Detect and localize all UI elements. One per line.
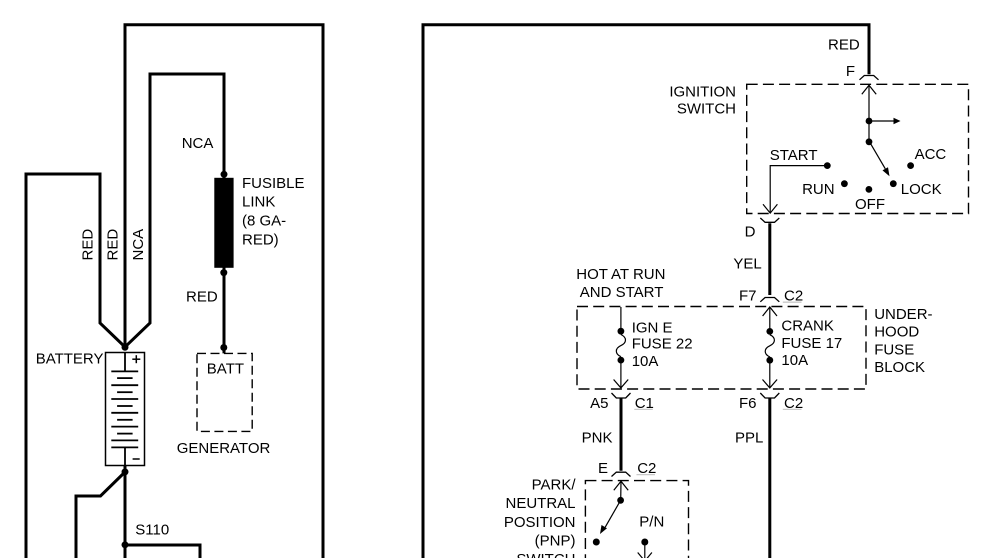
svg-text:FUSE 22: FUSE 22 [632, 335, 693, 352]
svg-text:CRANK: CRANK [781, 318, 834, 335]
svg-text:BATT: BATT [207, 360, 244, 377]
svg-text:PARK/: PARK/ [532, 476, 577, 493]
svg-text:GENERATOR: GENERATOR [177, 440, 271, 457]
svg-text:FUSE 17: FUSE 17 [781, 335, 842, 352]
svg-text:IGNITION: IGNITION [669, 83, 736, 100]
svg-text:YEL: YEL [733, 255, 761, 272]
svg-text:S110: S110 [135, 522, 169, 539]
svg-text:PNK: PNK [582, 430, 613, 447]
svg-text:AND START: AND START [580, 284, 664, 301]
svg-text:RUN: RUN [802, 181, 835, 198]
svg-text:C2: C2 [637, 460, 656, 477]
svg-text:C2: C2 [784, 395, 803, 412]
svg-text:SWITCH: SWITCH [516, 551, 575, 558]
svg-text:HOOD: HOOD [874, 324, 919, 341]
svg-text:NCA: NCA [130, 229, 147, 261]
svg-text:F: F [846, 63, 855, 80]
svg-text:RED: RED [79, 229, 96, 261]
svg-text:RED: RED [828, 36, 860, 53]
svg-text:P/N: P/N [639, 513, 664, 530]
svg-text:PPL: PPL [735, 430, 763, 447]
svg-text:10A: 10A [781, 352, 808, 369]
svg-text:START: START [770, 147, 818, 164]
svg-text:A5: A5 [590, 395, 608, 412]
svg-text:(PNP): (PNP) [535, 533, 576, 550]
svg-text:UNDER-: UNDER- [874, 306, 932, 323]
svg-text:10A: 10A [632, 353, 659, 370]
svg-text:FUSE: FUSE [874, 341, 914, 358]
svg-text:(8 GA-: (8 GA- [242, 213, 286, 230]
svg-text:IGN E: IGN E [632, 319, 673, 336]
svg-text:NCA: NCA [182, 135, 214, 152]
svg-text:FUSIBLE: FUSIBLE [242, 175, 305, 192]
svg-text:E: E [598, 460, 608, 477]
svg-text:ACC: ACC [915, 146, 947, 163]
svg-text:POSITION: POSITION [504, 514, 576, 531]
svg-text:HOT AT RUN: HOT AT RUN [576, 266, 665, 283]
svg-text:BATTERY: BATTERY [36, 350, 104, 367]
svg-text:F7: F7 [739, 288, 757, 305]
svg-text:RED): RED) [242, 231, 279, 248]
svg-text:OFF: OFF [855, 196, 885, 213]
svg-text:NEUTRAL: NEUTRAL [505, 495, 575, 512]
svg-text:C1: C1 [635, 395, 654, 412]
svg-text:D: D [745, 223, 756, 240]
svg-text:LINK: LINK [242, 194, 275, 211]
svg-text:C2: C2 [784, 288, 803, 305]
svg-text:RED: RED [186, 289, 218, 306]
svg-text:BLOCK: BLOCK [874, 359, 925, 376]
svg-text:SWITCH: SWITCH [677, 100, 736, 117]
svg-text:LOCK: LOCK [901, 181, 942, 198]
svg-text:F6: F6 [739, 395, 757, 412]
svg-text:RED: RED [104, 229, 121, 261]
